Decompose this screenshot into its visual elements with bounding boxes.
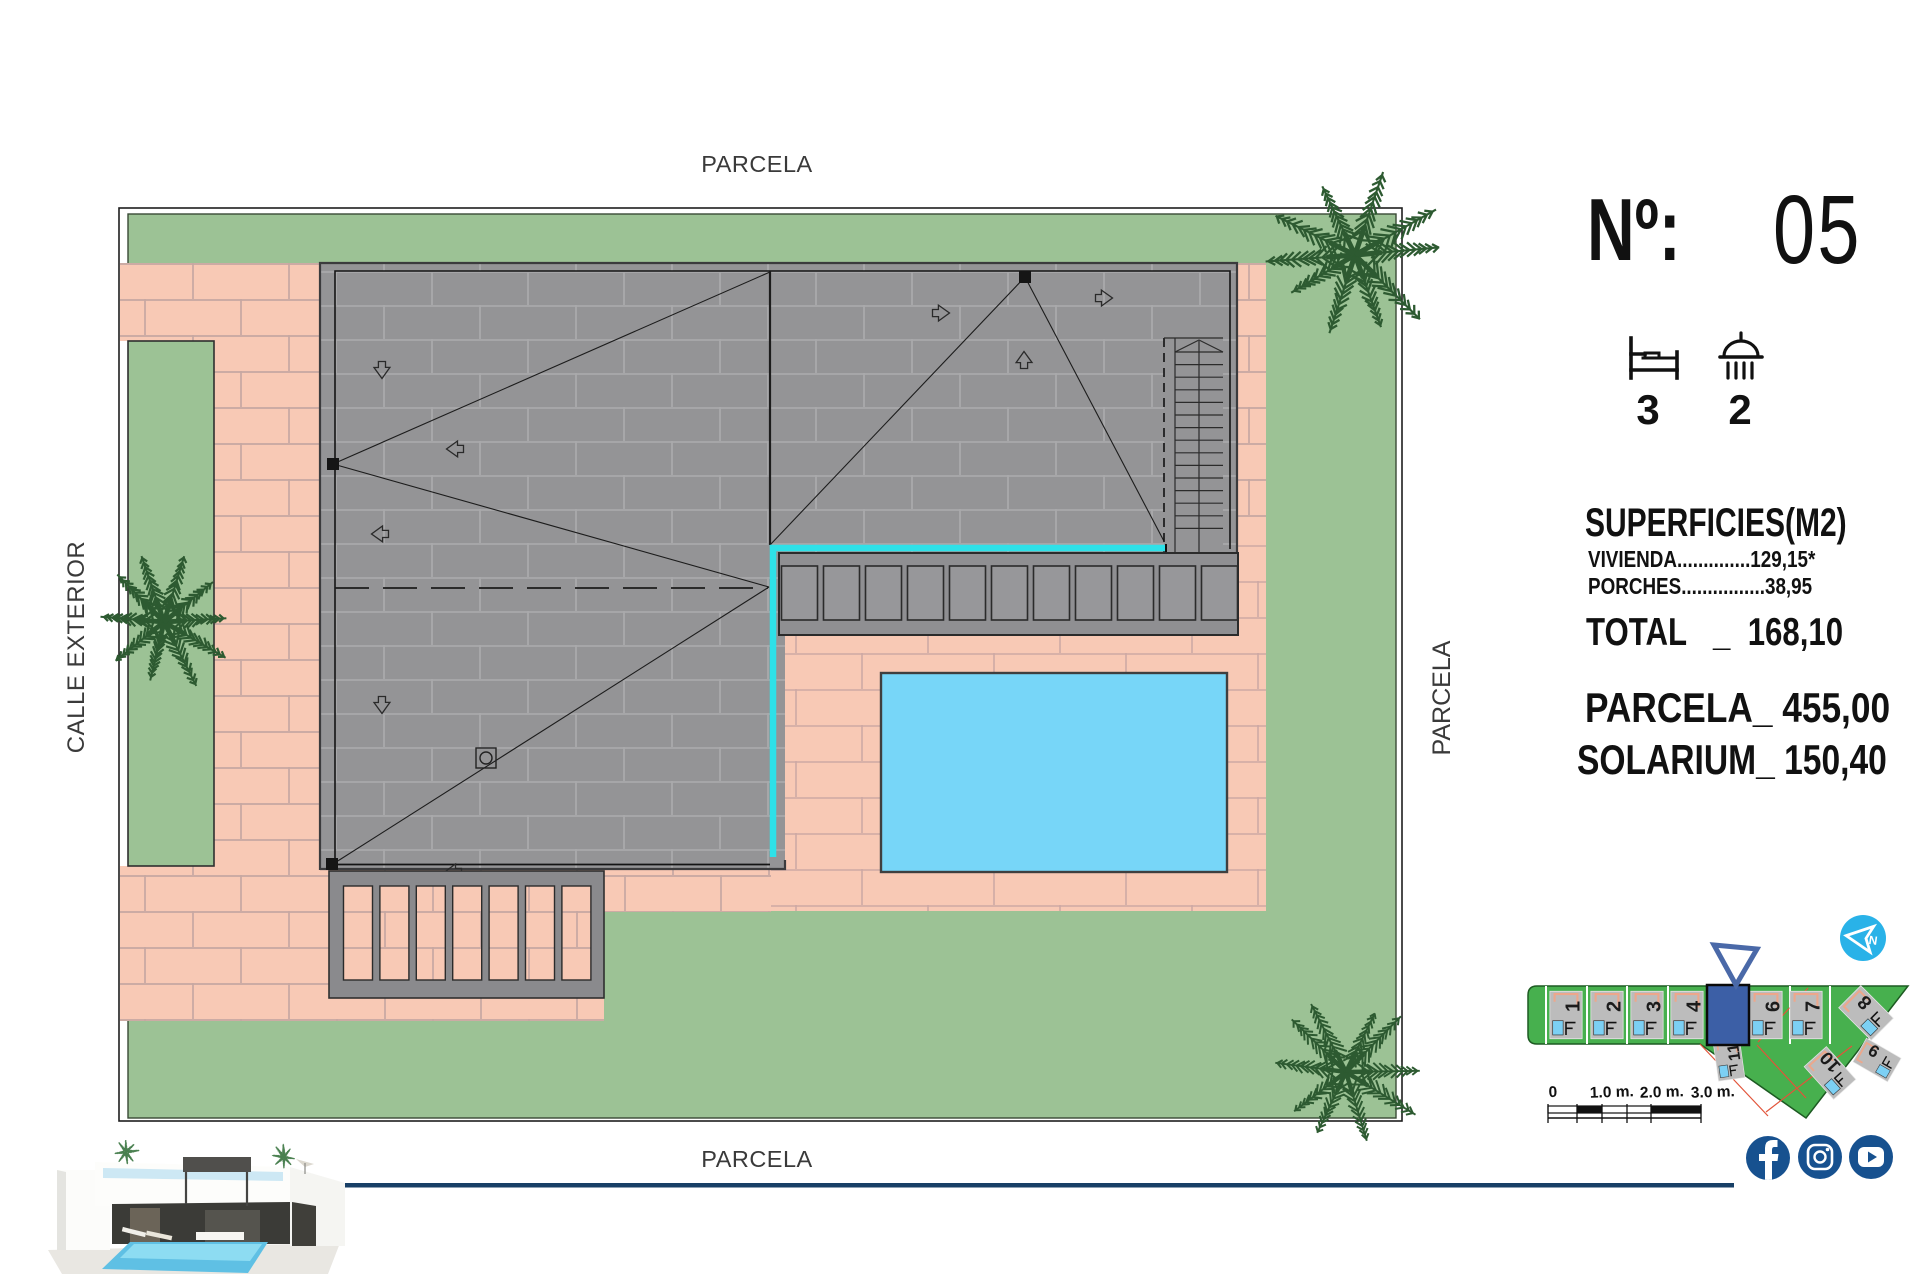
svg-text:TOTAL _ 168,10: TOTAL _ 168,10 (1586, 611, 1843, 654)
svg-text:Nº:: Nº: (1587, 182, 1681, 279)
svg-text:PARCELA_ 455,00: PARCELA_ 455,00 (1585, 685, 1890, 732)
svg-text:2.0 m.: 2.0 m. (1640, 1083, 1685, 1102)
svg-text:6: 6 (1763, 1001, 1785, 1012)
svg-text:1: 1 (1563, 1001, 1585, 1012)
svg-text:2: 2 (1604, 1001, 1626, 1012)
svg-text:VIVIENDA..............129,15*: VIVIENDA..............129,15* (1588, 547, 1816, 572)
svg-text:3: 3 (1644, 1001, 1666, 1012)
svg-text:PARCELA: PARCELA (701, 1146, 812, 1172)
svg-text:05: 05 (1773, 176, 1862, 284)
svg-text:3: 3 (1636, 386, 1659, 433)
svg-text:PORCHES................38,95: PORCHES................38,95 (1588, 574, 1812, 599)
svg-text:3.0 m.: 3.0 m. (1691, 1083, 1736, 1102)
svg-text:SUPERFICIES(M2): SUPERFICIES(M2) (1585, 501, 1847, 545)
svg-text:CALLE EXTERIOR: CALLE EXTERIOR (63, 541, 90, 753)
svg-text:0: 0 (1548, 1084, 1557, 1101)
svg-text:SOLARIUM_ 150,40: SOLARIUM_ 150,40 (1577, 738, 1887, 784)
svg-text:2: 2 (1728, 386, 1751, 433)
svg-text:PARCELA: PARCELA (1428, 640, 1456, 755)
svg-text:4: 4 (1684, 1001, 1706, 1012)
svg-text:1.0 m.: 1.0 m. (1590, 1083, 1635, 1102)
svg-text:PARCELA: PARCELA (701, 151, 812, 177)
svg-text:7: 7 (1803, 1001, 1825, 1012)
